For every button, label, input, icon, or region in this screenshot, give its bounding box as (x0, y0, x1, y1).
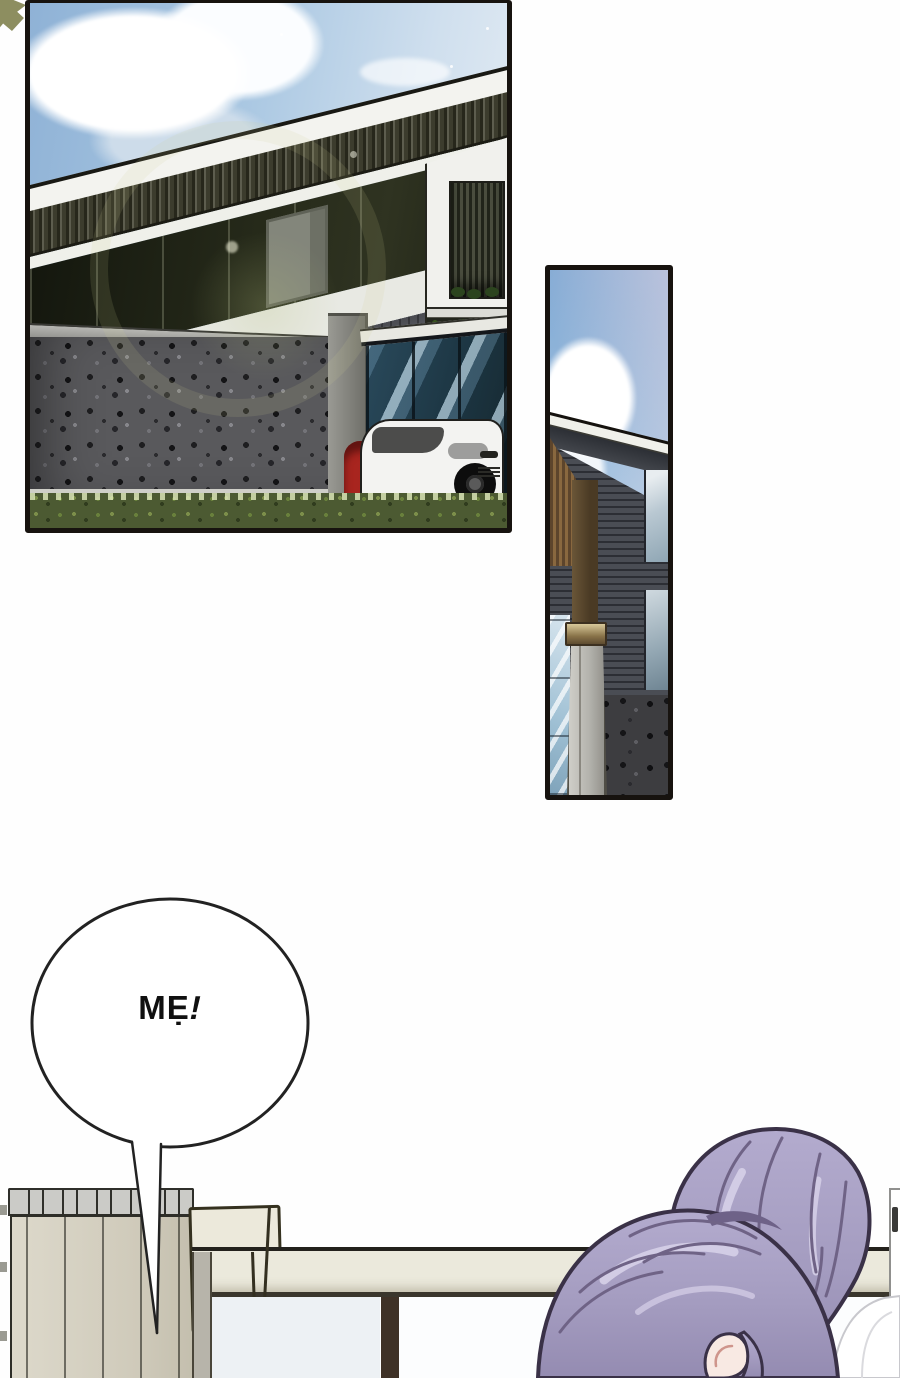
window-glint (644, 470, 668, 562)
window-glint (644, 590, 668, 690)
wall-tick (0, 1205, 7, 1215)
suv-grille (478, 465, 500, 477)
speech-text: MẸ! (100, 989, 240, 1027)
panel-house-wide (25, 0, 512, 533)
speech-bubble (20, 893, 320, 1358)
plant (467, 289, 481, 299)
suv-headlight (480, 451, 498, 458)
panel-house-tall (545, 265, 673, 800)
pillar-shaft (567, 646, 607, 795)
ear (705, 1334, 748, 1378)
suv-windshield (372, 427, 444, 453)
corner-glyph-icon (0, 0, 26, 31)
purple-haired-character (520, 1120, 900, 1378)
wall-tick (0, 1262, 7, 1272)
lens-flare-blob (190, 231, 340, 381)
table-leg (381, 1297, 399, 1378)
grass-strip (30, 493, 507, 528)
plant (485, 287, 499, 297)
bronze-column (572, 480, 598, 625)
louvered-window (449, 181, 505, 299)
lens-flare-dot (350, 151, 357, 158)
shoulder (832, 1296, 900, 1378)
sky-sparkle (486, 27, 489, 30)
plant (451, 287, 465, 297)
speech-text-main: MẸ (138, 989, 190, 1026)
sky-sparkle (172, 99, 175, 102)
wall-tick (0, 1331, 7, 1341)
comic-page: MẸ! (0, 0, 900, 1378)
sky-sparkle (450, 65, 453, 68)
white-suv (360, 419, 504, 503)
suv-wheel-rim (466, 475, 484, 493)
cloud (360, 58, 450, 86)
pillar-cap (565, 622, 607, 646)
lens-flare-dot (226, 241, 238, 253)
sky-sparkle (280, 33, 283, 36)
